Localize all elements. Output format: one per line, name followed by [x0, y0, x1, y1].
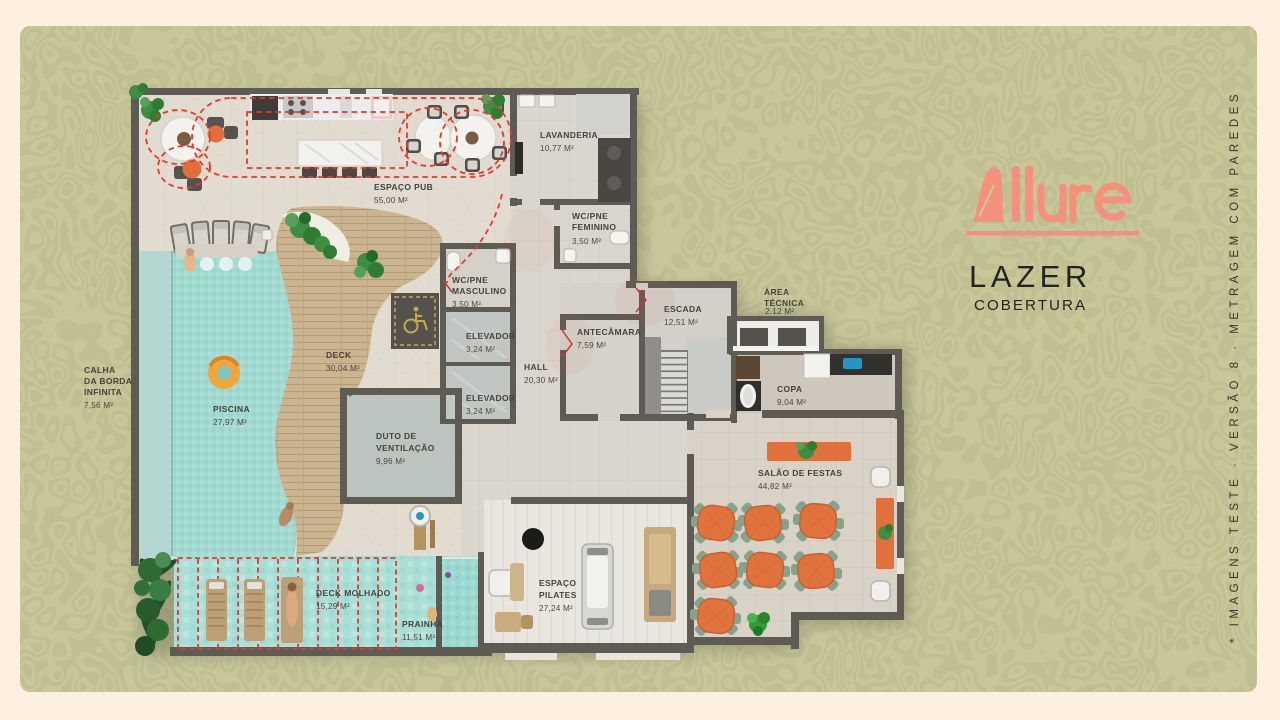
svg-text:PILATES: PILATES — [539, 590, 577, 600]
svg-text:VENTILAÇÃO: VENTILAÇÃO — [376, 443, 435, 453]
svg-text:PRAINHA: PRAINHA — [402, 619, 443, 629]
svg-text:FEMININO: FEMININO — [572, 222, 616, 232]
svg-text:9,96 M²: 9,96 M² — [376, 457, 405, 466]
svg-text:3,50 M²: 3,50 M² — [452, 300, 481, 309]
svg-text:INFINITA: INFINITA — [84, 387, 122, 397]
svg-text:DECK: DECK — [326, 350, 352, 360]
svg-text:9,04 M²: 9,04 M² — [777, 398, 806, 407]
svg-text:12,51 M²: 12,51 M² — [664, 318, 698, 327]
svg-text:ESPAÇO PUB: ESPAÇO PUB — [374, 182, 433, 192]
svg-text:DECK MOLHADO: DECK MOLHADO — [316, 588, 391, 598]
svg-text:ANTECÂMARA: ANTECÂMARA — [577, 326, 641, 337]
svg-text:DUTO DE: DUTO DE — [376, 431, 417, 441]
svg-text:20,30 M²: 20,30 M² — [524, 376, 558, 385]
svg-text:COBERTURA: COBERTURA — [974, 297, 1087, 314]
svg-text:7,56 M²: 7,56 M² — [84, 401, 113, 410]
svg-text:3,24 M²: 3,24 M² — [466, 345, 495, 354]
svg-text:ESCADA: ESCADA — [664, 304, 702, 314]
svg-text:55,00 M²: 55,00 M² — [374, 196, 408, 205]
svg-text:44,82 M²: 44,82 M² — [758, 482, 792, 491]
svg-text:PISCINA: PISCINA — [213, 404, 250, 414]
svg-text:3,50 M²: 3,50 M² — [572, 237, 601, 246]
svg-text:WC/PNE: WC/PNE — [452, 275, 488, 285]
svg-text:ÁREA: ÁREA — [764, 287, 790, 297]
svg-text:ESPAÇO: ESPAÇO — [539, 578, 576, 588]
svg-text:15,29 M²: 15,29 M² — [316, 602, 350, 611]
svg-text:HALL: HALL — [524, 362, 548, 372]
svg-text:CALHA: CALHA — [84, 365, 116, 375]
svg-text:WC/PNE: WC/PNE — [572, 211, 608, 221]
svg-text:ELEVADOR: ELEVADOR — [466, 331, 515, 341]
svg-text:* IMAGENS TESTE · VERSÃO 8 · M: * IMAGENS TESTE · VERSÃO 8 · METRAGEM CO… — [1228, 90, 1241, 643]
svg-text:3,24 M²: 3,24 M² — [466, 407, 495, 416]
svg-text:2,12 M²: 2,12 M² — [765, 307, 794, 316]
svg-text:27,24 M²: 27,24 M² — [539, 604, 573, 613]
svg-text:COPA: COPA — [777, 384, 802, 394]
svg-text:MASCULINO: MASCULINO — [452, 286, 507, 296]
svg-text:LAVANDERIA: LAVANDERIA — [540, 130, 598, 140]
svg-text:DA BORDA: DA BORDA — [84, 376, 132, 386]
svg-text:30,04 M²: 30,04 M² — [326, 364, 360, 373]
svg-text:27,97 M²: 27,97 M² — [213, 418, 247, 427]
svg-text:10,77 M²: 10,77 M² — [540, 144, 574, 153]
svg-text:ELEVADOR: ELEVADOR — [466, 393, 515, 403]
svg-text:LAZER: LAZER — [969, 259, 1092, 294]
svg-text:SALÃO DE FESTAS: SALÃO DE FESTAS — [758, 468, 842, 478]
svg-text:7,59 M²: 7,59 M² — [577, 341, 606, 350]
svg-text:11,51 M²: 11,51 M² — [402, 633, 435, 642]
